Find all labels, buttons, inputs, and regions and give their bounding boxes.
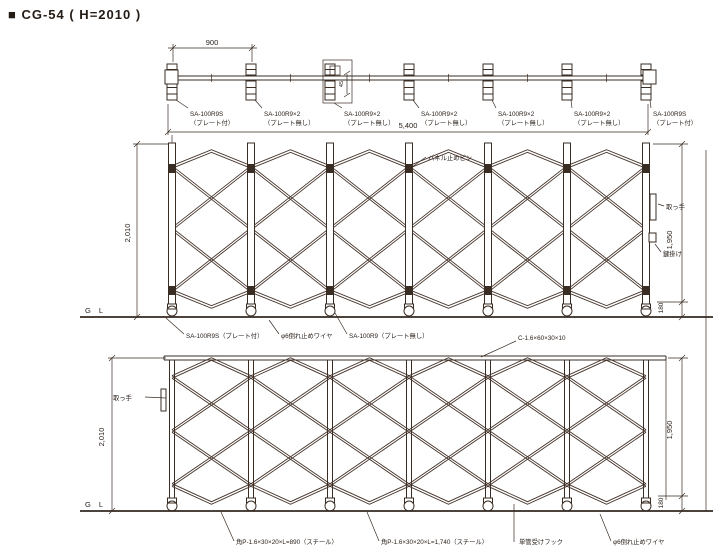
caster-label-5-line2: （プレート無し） xyxy=(498,118,548,127)
caster-label-1-line1: SA-100R9S xyxy=(190,111,223,118)
front-wheel-3 xyxy=(325,306,335,316)
rear-pipe-short-label: 角P-1.6×30×20×L=890（スチール） xyxy=(236,537,338,546)
caster-label-4-line2: （プレート無し） xyxy=(421,118,471,127)
caster-label-3-line1: SA-100R9×2 xyxy=(344,111,381,118)
front-dim-body: 1,950 xyxy=(665,231,674,250)
caster-label-5-line1: SA-100R9×2 xyxy=(498,111,535,118)
rear-wheel-5 xyxy=(483,501,493,511)
front-dim-right-lines xyxy=(653,141,688,320)
front-wheel-4 xyxy=(404,306,414,316)
rear-channel-leader xyxy=(481,341,516,357)
plan-end-plate-right xyxy=(643,70,656,84)
rear-top-rail xyxy=(164,356,666,360)
dim-900: 900 xyxy=(206,38,219,47)
plan-caster-leaders xyxy=(176,100,651,108)
caster-label-3-line2: （プレート無し） xyxy=(344,118,394,127)
rear-dim-height-lines xyxy=(108,355,166,514)
plan-caster-labels: SA-100R9S （プレート付） SA-100R9×2 （プレート無し） SA… xyxy=(190,111,697,127)
plan-caster-groups xyxy=(167,64,651,100)
caster-label-4-line1: SA-100R9×2 xyxy=(421,111,458,118)
rear-pipe-hook-label: 単管受けフック xyxy=(519,537,563,546)
rear-elevation: G L 2,010 1,950 180 C-1.6×60×30×10 取っ手 角… xyxy=(80,335,713,546)
rear-wheel-4 xyxy=(404,501,414,511)
front-tip-wire-label: φ6倒れ止めワイヤ xyxy=(281,331,332,340)
rear-pipe-long-label: 角P-1.6×30×20×L=1,740（スチール） xyxy=(381,537,488,546)
rear-wheel-3 xyxy=(325,501,335,511)
rear-bottom-leaders xyxy=(221,504,611,542)
front-latch xyxy=(649,233,656,242)
caster-label-2-line1: SA-100R9×2 xyxy=(264,111,301,118)
plan-end-plate-left xyxy=(165,70,178,84)
cad-drawing-page: ■ CG-54 ( H=2010 ) 45 900 5,400 SA-100R9… xyxy=(0,0,713,546)
front-handle-label: 取っ手 xyxy=(666,202,685,211)
rear-tip-wire-label: φ6倒れ止めワイヤ xyxy=(613,537,664,546)
caster-label-1-line2: （プレート付） xyxy=(190,118,234,127)
rear-wheel-6 xyxy=(562,501,572,511)
front-panel-pin-label: パネル止めピン xyxy=(428,153,472,162)
rear-handle xyxy=(161,389,166,411)
front-handle xyxy=(650,194,656,220)
front-latch-label: 鍵掛け xyxy=(663,249,682,258)
rear-dim-height: 2,010 xyxy=(97,428,106,447)
front-wheel-6 xyxy=(562,306,572,316)
page-title: ■ CG-54 ( H=2010 ) xyxy=(8,7,141,22)
front-dim-height: 2,010 xyxy=(123,224,132,243)
cad-drawing: ■ CG-54 ( H=2010 ) 45 900 5,400 SA-100R9… xyxy=(0,0,713,546)
front-latch-leader xyxy=(655,244,661,252)
plan-view: 45 900 5,400 SA-100R9S （プレート付） SA-100R9×… xyxy=(165,38,697,146)
rear-wheel-2 xyxy=(246,501,256,511)
caster-label-7-line1: SA-100R9S xyxy=(653,111,686,118)
front-handle-leader xyxy=(658,204,664,206)
caster-label-2-line2: （プレート無し） xyxy=(264,118,314,127)
rear-handle-label: 取っ手 xyxy=(113,393,132,402)
caster-label-6-line2: （プレート無し） xyxy=(574,118,624,127)
plan-detail-dim: 45 xyxy=(339,81,345,87)
front-gl-label: G L xyxy=(85,306,106,315)
rear-channel-label: C-1.6×60×30×10 xyxy=(518,335,566,342)
front-caster-plate-label: SA-100R9S（プレート付） xyxy=(186,331,263,340)
dim-5400: 5,400 xyxy=(399,121,418,130)
caster-label-6-line1: SA-100R9×2 xyxy=(574,111,611,118)
caster-label-7-line2: （プレート付） xyxy=(653,118,697,127)
front-dim-height-lines xyxy=(133,141,169,320)
rear-dim-body: 1,950 xyxy=(665,421,674,440)
front-wheel-5 xyxy=(483,306,493,316)
plan-gate-bar xyxy=(166,76,652,80)
front-dim-base: 180 xyxy=(658,302,665,313)
front-caster-noplate-label: SA-100R9（プレート無し） xyxy=(349,331,428,340)
rear-dim-base: 180 xyxy=(658,497,665,508)
front-wheel-2 xyxy=(246,306,256,316)
rear-gl-label: G L xyxy=(85,500,106,509)
